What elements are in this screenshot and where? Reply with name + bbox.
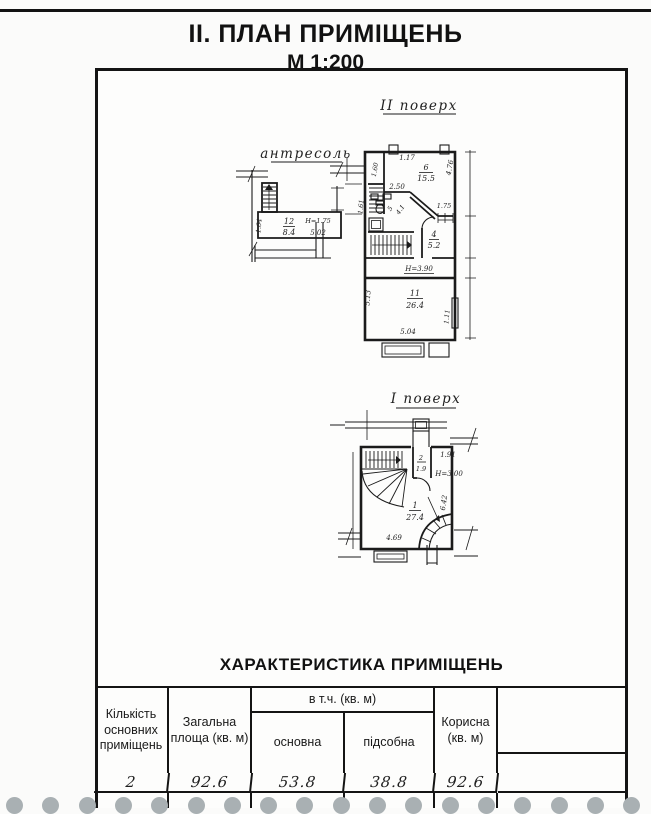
floor2-dim-175: 1.75 xyxy=(437,202,451,210)
floor1-room2-label: 2 1.9 xyxy=(416,454,426,473)
perforation-dot xyxy=(333,797,350,814)
svg-text:11: 11 xyxy=(410,289,420,298)
perforation-dot xyxy=(260,797,277,814)
mezzanine-height-mark: Н=1.75 xyxy=(304,217,331,225)
characteristics-table: ХАРАКТЕРИСТИКА ПРИМІЩЕНЬ Кількість основ… xyxy=(95,643,628,808)
floor-plans-drawing: ІІ поверх xyxy=(95,68,628,643)
perforation-dot xyxy=(551,797,568,814)
col-header-empty xyxy=(498,688,628,773)
floor2-height-mark: Н=3.90 xyxy=(404,265,433,273)
value-total: 92.6 xyxy=(168,773,253,793)
value-aux: 38.8 xyxy=(344,773,436,793)
floor2-dim-250: 2.50 xyxy=(388,183,405,191)
svg-text:4.1: 4.1 xyxy=(394,203,407,217)
floor2-dim-111: 1.11 xyxy=(442,309,451,324)
perforation-dot xyxy=(587,797,604,814)
svg-text:26.4: 26.4 xyxy=(405,301,424,310)
floor2-plan: ІІ поверх xyxy=(312,98,476,357)
floor1-height-mark: Н=3.00 xyxy=(434,470,463,478)
floor2-room5-label: 5 4.1 xyxy=(386,198,407,218)
floor1-dim-642: 6.42 xyxy=(439,494,449,511)
perforation-dot xyxy=(442,797,459,814)
floor2-room6-label: 6 15.5 xyxy=(417,163,435,183)
floor2-dim-160: 1.60 xyxy=(370,162,380,178)
svg-text:5.2: 5.2 xyxy=(428,241,441,250)
floor2-dim-161: 1.61 xyxy=(356,199,365,214)
page-top-rule xyxy=(0,9,651,12)
value-useful: 92.6 xyxy=(434,773,499,793)
value-empty xyxy=(498,773,628,793)
floor1-title: І поверх xyxy=(390,391,462,407)
floor1-room1-label: 1 27.4 xyxy=(405,501,424,522)
perforation-dot xyxy=(188,797,205,814)
floor2-dim-117: 1.17 xyxy=(399,154,415,162)
svg-text:4: 4 xyxy=(430,230,436,239)
mezzanine-dim-left: 1.64 xyxy=(254,218,263,233)
perforation-dot xyxy=(79,797,96,814)
floor2-title: ІІ поверх xyxy=(379,98,457,114)
svg-text:6: 6 xyxy=(423,163,428,172)
perforation-dot xyxy=(151,797,168,814)
perforation-dot xyxy=(623,797,640,814)
floor1-dim-191: 1.91 xyxy=(440,451,456,459)
perforation-dot xyxy=(6,797,23,814)
svg-text:1.9: 1.9 xyxy=(416,465,426,473)
table-title: ХАРАКТЕРИСТИКА ПРИМІЩЕНЬ xyxy=(95,643,628,688)
page-title: II. ПЛАН ПРИМІЩЕНЬ xyxy=(0,20,651,49)
mezzanine-title: антресоль xyxy=(260,146,352,162)
page-header: II. ПЛАН ПРИМІЩЕНЬ М 1:200 xyxy=(0,20,651,75)
mezzanine-room-label: 12 8.4 xyxy=(283,217,296,237)
empty-col-divider xyxy=(498,752,628,754)
floor2-dim-504: 5.04 xyxy=(400,328,416,336)
floor2-room11-label: 11 26.4 xyxy=(405,289,424,310)
col-header-count: Кількість основних приміщень xyxy=(95,688,169,773)
svg-text:15.5: 15.5 xyxy=(417,174,435,183)
perforation-dots xyxy=(0,797,651,808)
svg-text:27.4: 27.4 xyxy=(405,513,424,522)
mezzanine-dim-width: 5.02 xyxy=(310,229,326,237)
floor2-dim-513: 5.13 xyxy=(363,289,372,306)
perforation-dot xyxy=(115,797,132,814)
floor2-room4-label: 4 5.2 xyxy=(428,230,441,250)
value-main: 53.8 xyxy=(251,773,346,793)
col-header-incl: в т.ч. (кв. м) xyxy=(252,688,435,713)
perforation-dot xyxy=(478,797,495,814)
svg-text:1: 1 xyxy=(412,501,417,510)
col-header-main: основна xyxy=(252,713,345,773)
col-header-useful: Корисна (кв. м) xyxy=(435,688,498,773)
svg-text:2: 2 xyxy=(418,454,423,462)
perforation-dot xyxy=(224,797,241,814)
floor1-plan: І поверх xyxy=(330,391,478,565)
perforation-dot xyxy=(369,797,386,814)
perforation-dot xyxy=(514,797,531,814)
scanned-plan-page: { "page": { "title": "II. ПЛАН ПРИМІЩЕНЬ… xyxy=(0,0,651,808)
mezzanine-plan: антресоль 12 8.4 Н=1.75 5.02 1.64 xyxy=(236,146,362,262)
value-count: 2 xyxy=(94,773,170,793)
perforation-dot xyxy=(405,797,422,814)
col-header-total: Загальна площа (кв. м) xyxy=(169,688,252,773)
perforation-dot xyxy=(296,797,313,814)
floor1-dim-469: 4.69 xyxy=(385,534,402,542)
svg-text:8.4: 8.4 xyxy=(283,228,296,237)
svg-text:12: 12 xyxy=(284,217,294,226)
col-header-aux: підсобна xyxy=(345,713,435,773)
perforation-dot xyxy=(42,797,59,814)
